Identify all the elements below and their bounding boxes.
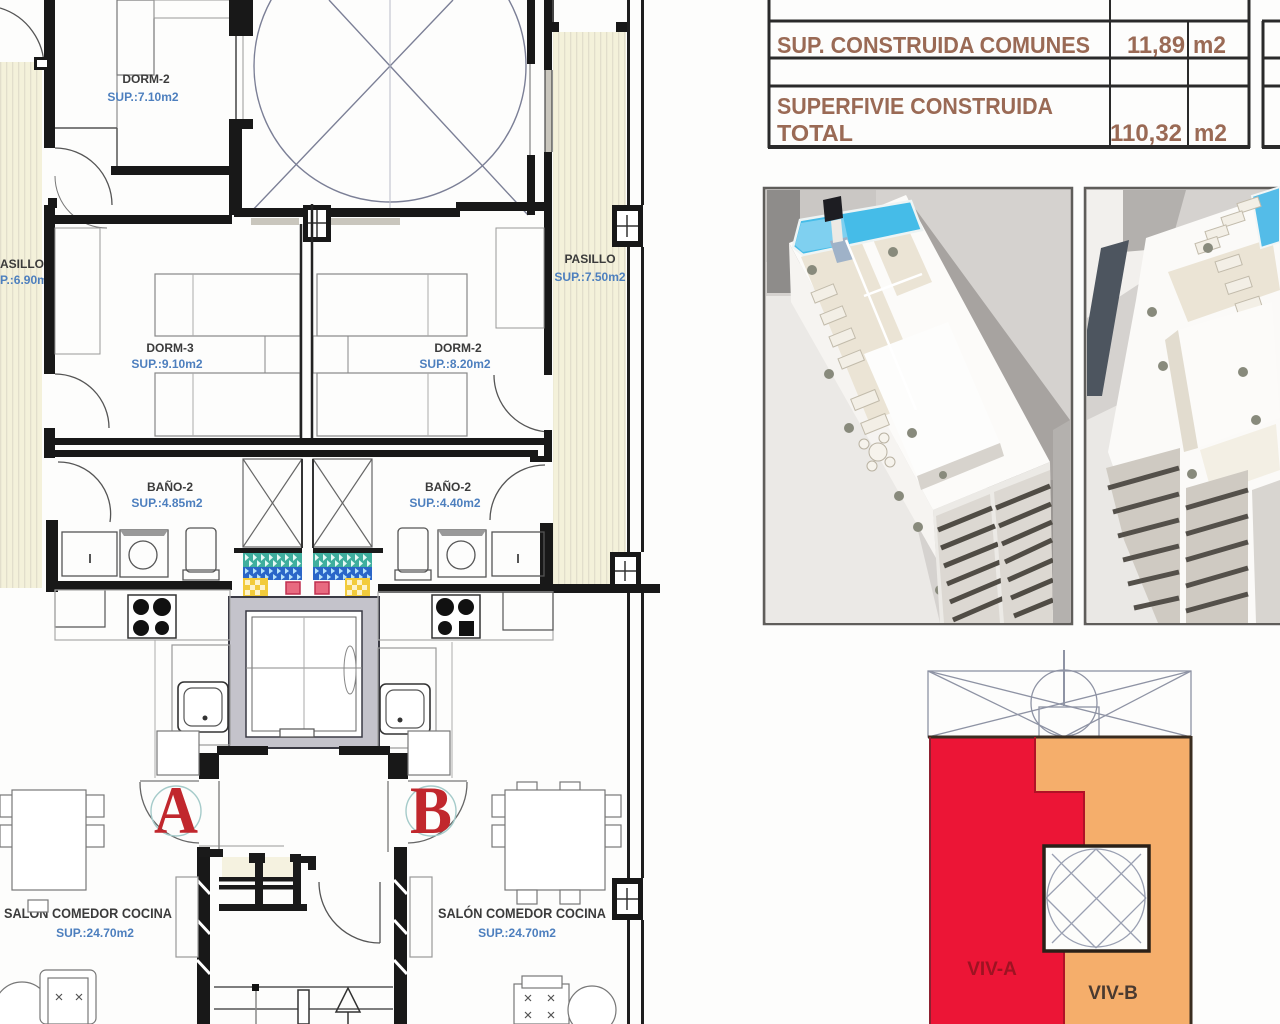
svg-text:SUP.:9.10m2: SUP.:9.10m2 — [131, 357, 202, 371]
svg-text:BAÑO-2: BAÑO-2 — [147, 479, 193, 494]
svg-text:ASILLO: ASILLO — [0, 257, 44, 271]
svg-text:m2: m2 — [1193, 32, 1226, 59]
svg-text:SUP.:7.50m2: SUP.:7.50m2 — [554, 270, 625, 284]
svg-text:B: B — [410, 772, 452, 848]
svg-text:DORM-3: DORM-3 — [146, 341, 194, 355]
svg-text:m2: m2 — [1194, 120, 1227, 147]
svg-text:TOTAL: TOTAL — [777, 120, 853, 146]
svg-text:SUP.:4.85m2: SUP.:4.85m2 — [131, 496, 202, 510]
svg-text:SUP.:24.70m2: SUP.:24.70m2 — [56, 926, 134, 940]
svg-text:SUP.:24.70m2: SUP.:24.70m2 — [478, 926, 556, 940]
svg-text:BAÑO-2: BAÑO-2 — [425, 479, 471, 494]
svg-text:DORM-2: DORM-2 — [434, 341, 482, 355]
svg-text:SUP.:4.40m2: SUP.:4.40m2 — [409, 496, 480, 510]
svg-text:SUPERFIVIE CONSTRUIDA: SUPERFIVIE CONSTRUIDA — [777, 93, 1053, 119]
svg-text:SUP. CONSTRUIDA COMUNES: SUP. CONSTRUIDA COMUNES — [777, 32, 1090, 58]
svg-text:A: A — [154, 772, 198, 848]
svg-text:SALÓN COMEDOR COCINA: SALÓN COMEDOR COCINA — [438, 904, 606, 921]
svg-text:SUP.:8.20m2: SUP.:8.20m2 — [419, 357, 490, 371]
svg-text:VIV-A: VIV-A — [967, 959, 1017, 980]
svg-text:DORM-2: DORM-2 — [122, 72, 170, 86]
svg-text:11,89: 11,89 — [1127, 32, 1185, 59]
svg-text:PASILLO: PASILLO — [564, 252, 615, 266]
svg-text:VIV-B: VIV-B — [1088, 983, 1138, 1004]
svg-text:110,32: 110,32 — [1110, 120, 1182, 147]
svg-text:SUP.:7.10m2: SUP.:7.10m2 — [107, 90, 178, 104]
